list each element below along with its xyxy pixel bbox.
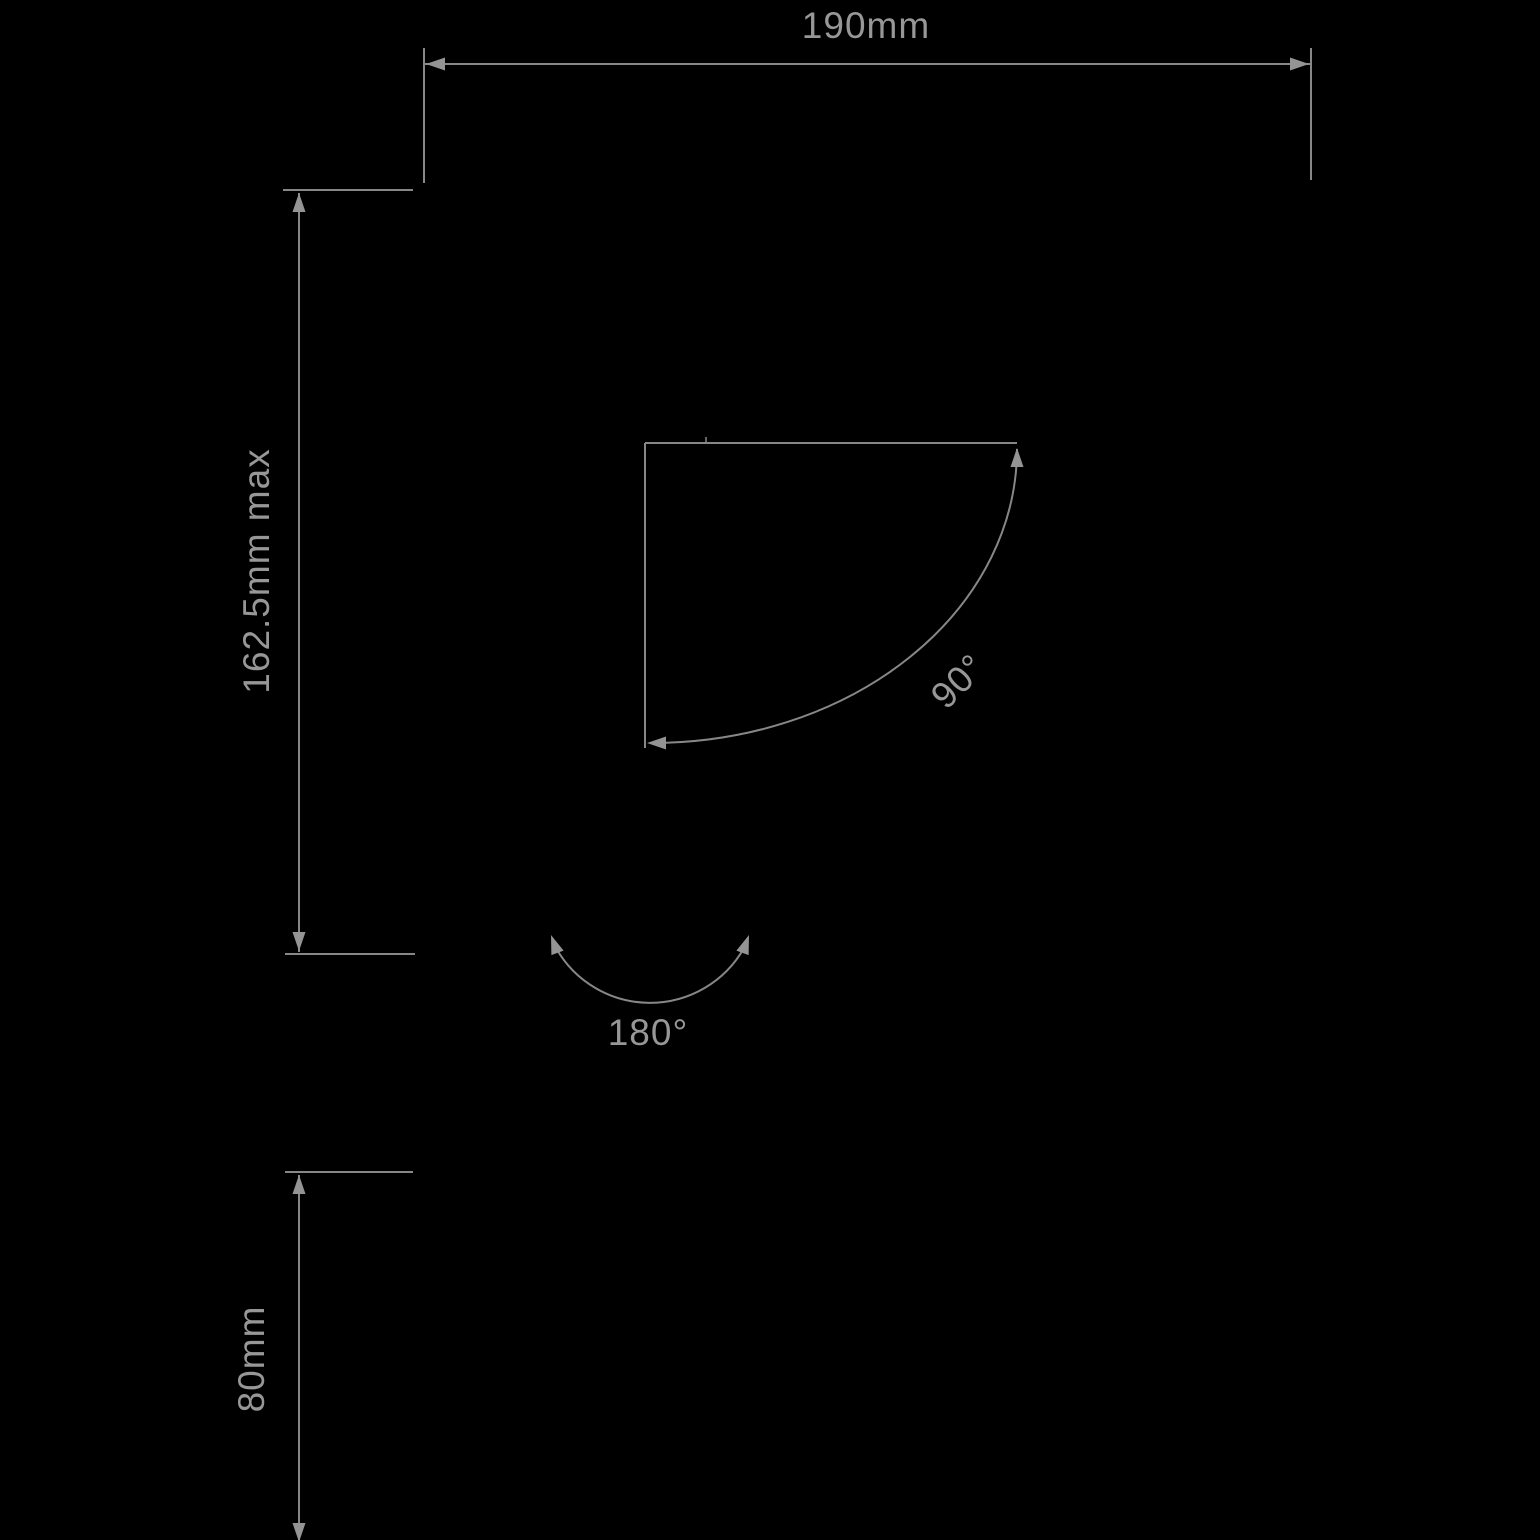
arrowhead-left-icon xyxy=(426,58,445,71)
dimension-swivel-angle: 180° xyxy=(545,933,755,1053)
arrowhead-right-icon xyxy=(1290,58,1309,71)
arrowhead-up-icon xyxy=(293,193,306,212)
dimension-label-swivel-angle: 180° xyxy=(608,1012,689,1053)
arrowhead-up-icon xyxy=(293,1175,306,1194)
arrowhead-up-right-icon xyxy=(736,933,755,955)
arrowhead-left-icon xyxy=(647,737,666,750)
dimension-drawing: 190mm 162.5mm max 90° 180° xyxy=(0,0,1540,1540)
arrowhead-up-left-icon xyxy=(545,933,564,955)
dimension-bottom-height: 80mm xyxy=(231,1172,413,1540)
arrowhead-down-icon xyxy=(293,932,306,951)
angle-arc xyxy=(556,948,744,1003)
arrowhead-down-icon xyxy=(293,1523,306,1540)
dimension-tilt-angle: 90° xyxy=(645,437,1024,750)
dimension-left-height: 162.5mm max xyxy=(236,190,415,954)
dimension-label-width: 190mm xyxy=(802,5,930,46)
dimension-label-tilt-angle: 90° xyxy=(923,646,994,717)
dimension-label-max-height: 162.5mm max xyxy=(236,448,277,693)
dimension-top-width: 190mm xyxy=(424,5,1311,183)
dimension-drawing-canvas: 190mm 162.5mm max 90° 180° xyxy=(0,0,1540,1540)
arrowhead-up-icon xyxy=(1011,448,1024,467)
dimension-label-bottom-height: 80mm xyxy=(231,1306,272,1413)
